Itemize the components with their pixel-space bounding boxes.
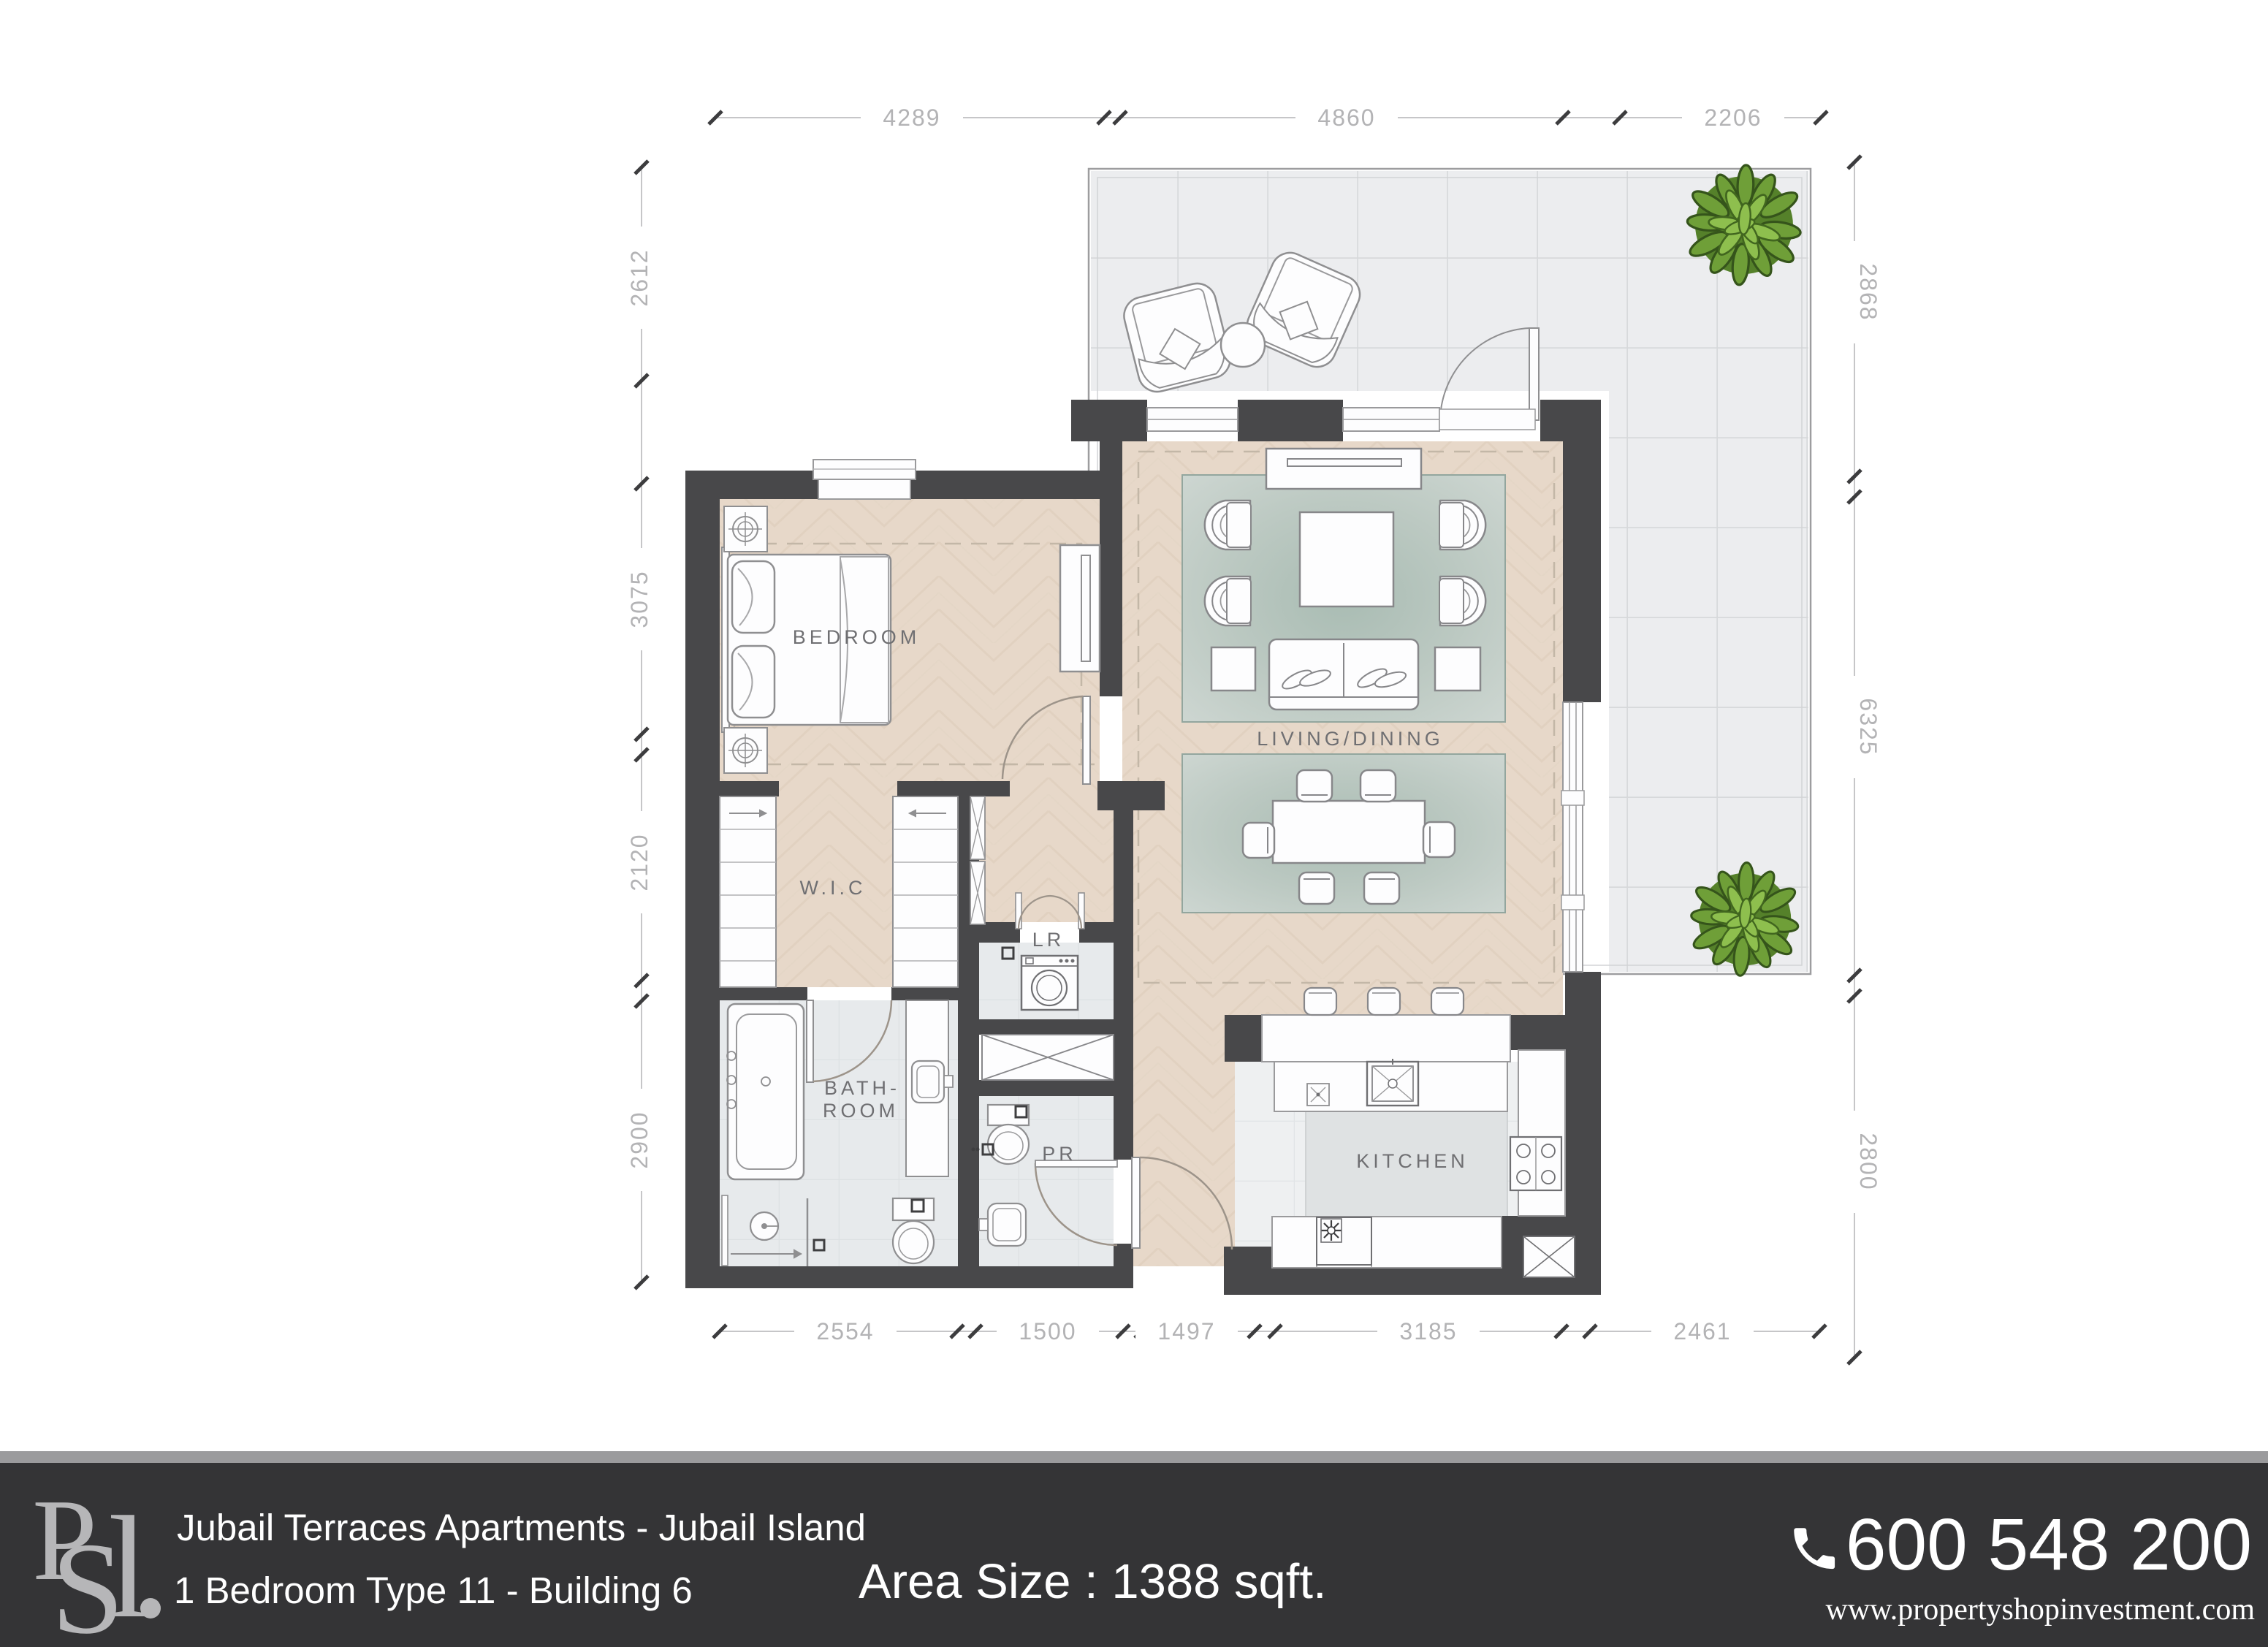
svg-text:4860: 4860 xyxy=(1317,104,1375,131)
svg-text:1500: 1500 xyxy=(1019,1318,1076,1344)
svg-text:1497: 1497 xyxy=(1157,1318,1215,1344)
svg-text:2900: 2900 xyxy=(626,1111,652,1168)
svg-text:KITCHEN: KITCHEN xyxy=(1356,1150,1469,1172)
svg-text:ROOM: ROOM xyxy=(823,1100,899,1122)
svg-text:l: l xyxy=(108,1487,149,1647)
svg-text:W.I.C: W.I.C xyxy=(800,877,867,899)
svg-text:4289: 4289 xyxy=(883,104,940,131)
svg-text:Jubail Terraces Apartments - J: Jubail Terraces Apartments - Jubail Isla… xyxy=(177,1507,866,1548)
svg-text:BEDROOM: BEDROOM xyxy=(793,626,921,648)
svg-text:2868: 2868 xyxy=(1855,263,1881,321)
svg-text:3075: 3075 xyxy=(626,570,652,628)
svg-text:BATH-: BATH- xyxy=(824,1077,900,1099)
svg-text:LIVING/DINING: LIVING/DINING xyxy=(1257,728,1444,750)
svg-text:2461: 2461 xyxy=(1673,1318,1731,1344)
svg-text:LR: LR xyxy=(1032,929,1065,951)
svg-text:600 548 200: 600 548 200 xyxy=(1846,1504,2252,1586)
svg-text:3185: 3185 xyxy=(1399,1318,1457,1344)
svg-text:2554: 2554 xyxy=(816,1318,874,1344)
svg-text:2800: 2800 xyxy=(1855,1133,1881,1190)
svg-text:6325: 6325 xyxy=(1855,698,1881,756)
svg-text:Area Size : 1388 sqft.: Area Size : 1388 sqft. xyxy=(859,1554,1327,1609)
svg-text:2120: 2120 xyxy=(626,833,652,891)
svg-text:2612: 2612 xyxy=(626,248,652,306)
svg-text:2206: 2206 xyxy=(1704,104,1762,131)
svg-text:PR: PR xyxy=(1042,1143,1077,1165)
svg-text:1 Bedroom Type 11 - Building 6: 1 Bedroom Type 11 - Building 6 xyxy=(174,1570,693,1611)
svg-text:www.propertyshopinvestment.com: www.propertyshopinvestment.com xyxy=(1825,1593,2255,1627)
